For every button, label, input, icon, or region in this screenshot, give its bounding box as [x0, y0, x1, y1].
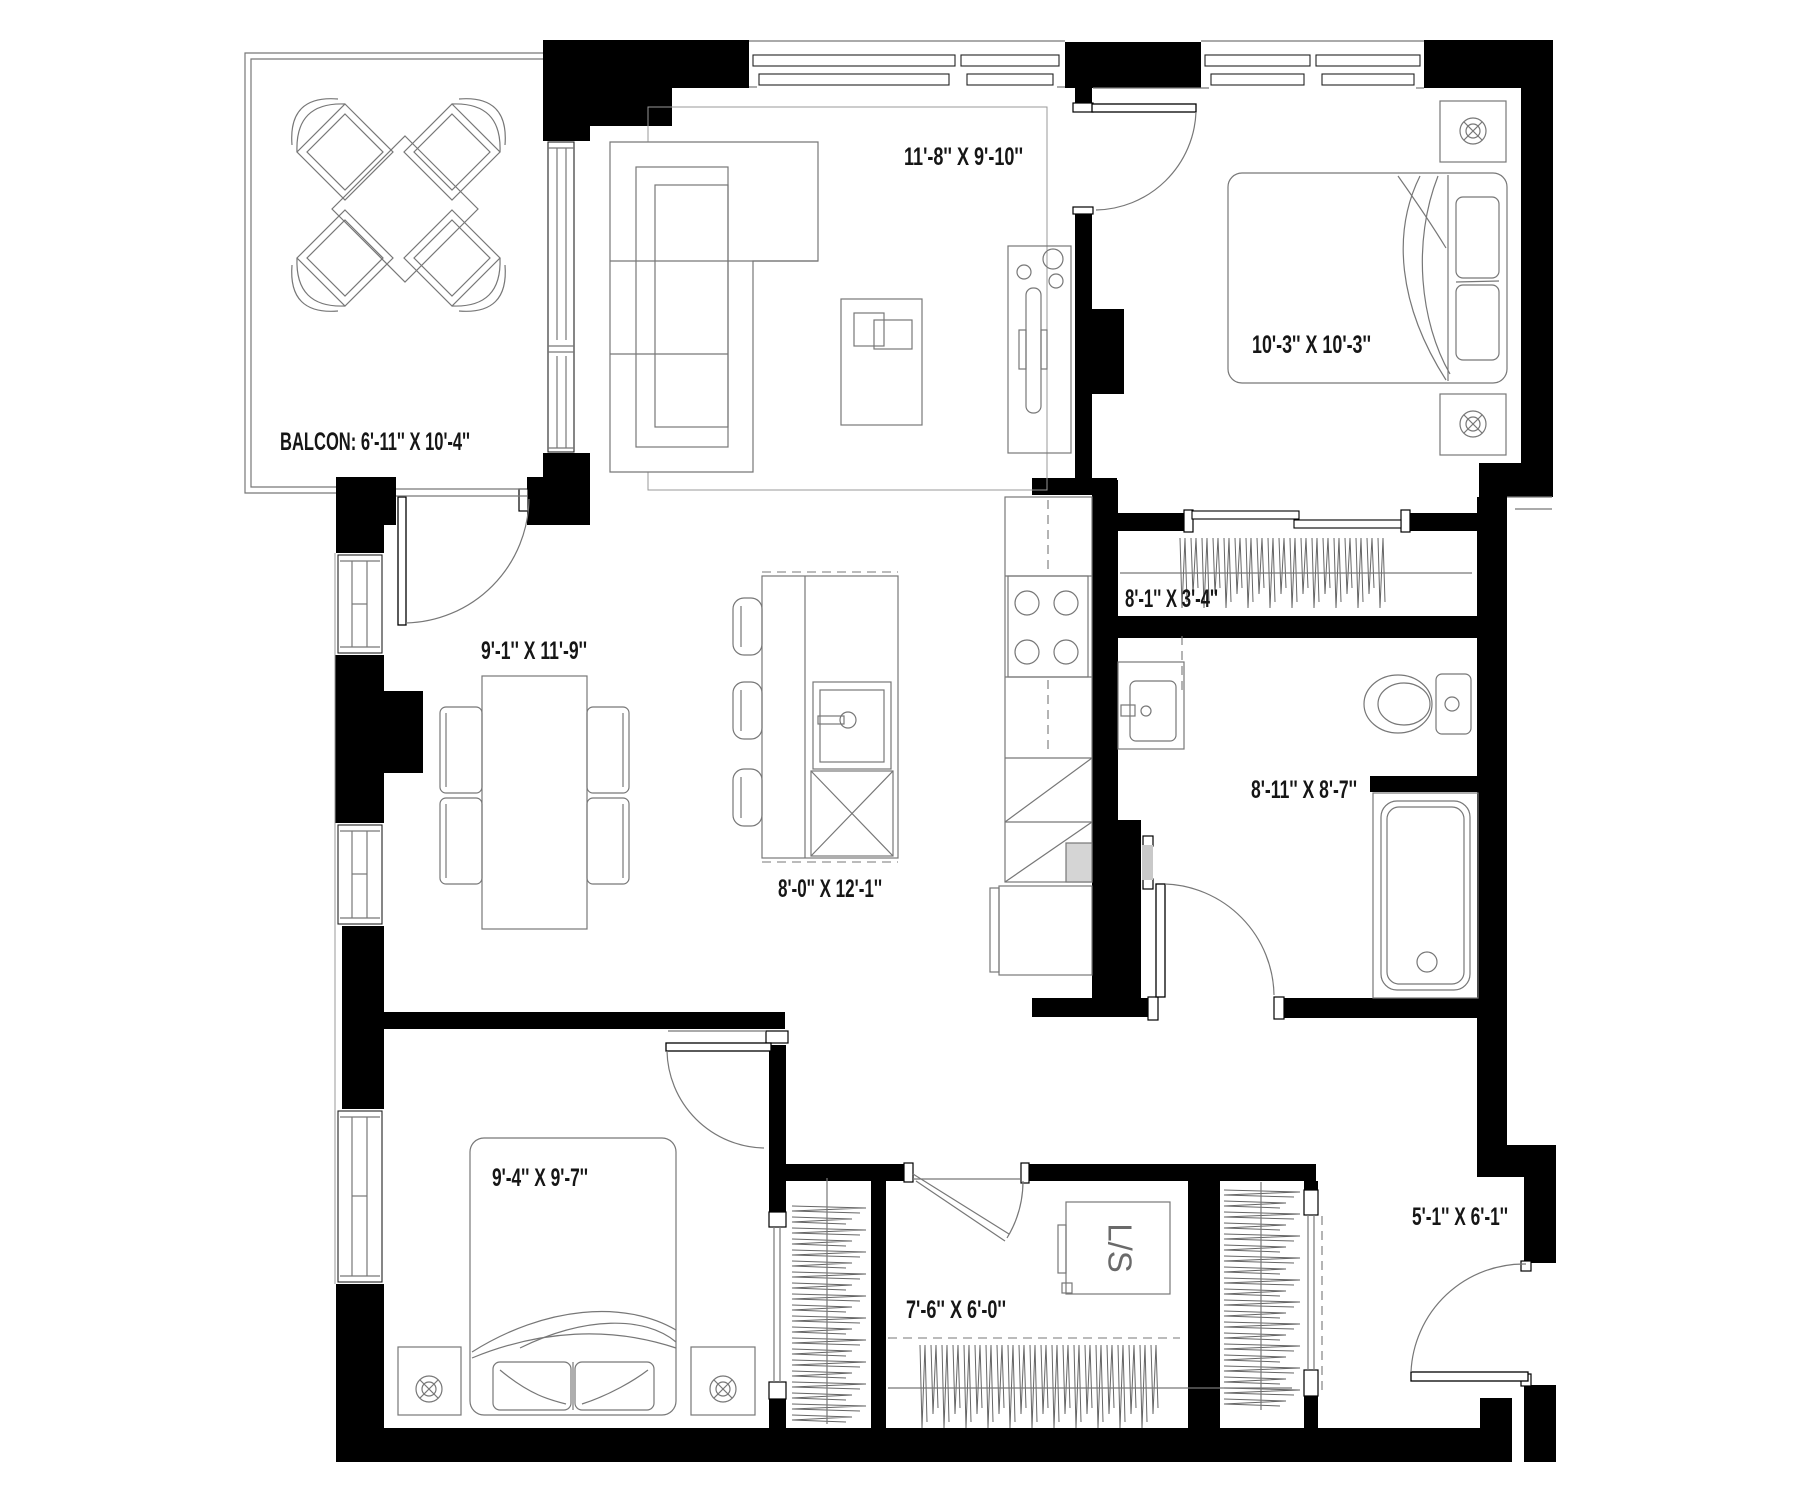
svg-text:5'-1'' X 6'-1'': 5'-1'' X 6'-1'' — [1412, 1203, 1508, 1231]
svg-text:BALCON: 6'-11'' X 10'-4'': BALCON: 6'-11'' X 10'-4'' — [280, 428, 470, 456]
svg-text:8'-11'' X 8'-7'': 8'-11'' X 8'-7'' — [1251, 776, 1357, 804]
svg-text:10'-3'' X 10'-3'': 10'-3'' X 10'-3'' — [1252, 331, 1371, 359]
svg-text:11'-8'' X 9'-10'': 11'-8'' X 9'-10'' — [904, 143, 1023, 171]
svg-text:9'-4'' X 9'-7'': 9'-4'' X 9'-7'' — [492, 1164, 588, 1192]
svg-text:8'-0'' X 12'-1'': 8'-0'' X 12'-1'' — [778, 875, 882, 903]
svg-text:L/S: L/S — [1102, 1223, 1139, 1273]
svg-text:7'-6'' X 6'-0'': 7'-6'' X 6'-0'' — [906, 1296, 1006, 1324]
svg-text:9'-1'' X 11'-9'': 9'-1'' X 11'-9'' — [481, 637, 587, 665]
svg-text:8'-1'' X 3'-4'': 8'-1'' X 3'-4'' — [1125, 585, 1218, 613]
